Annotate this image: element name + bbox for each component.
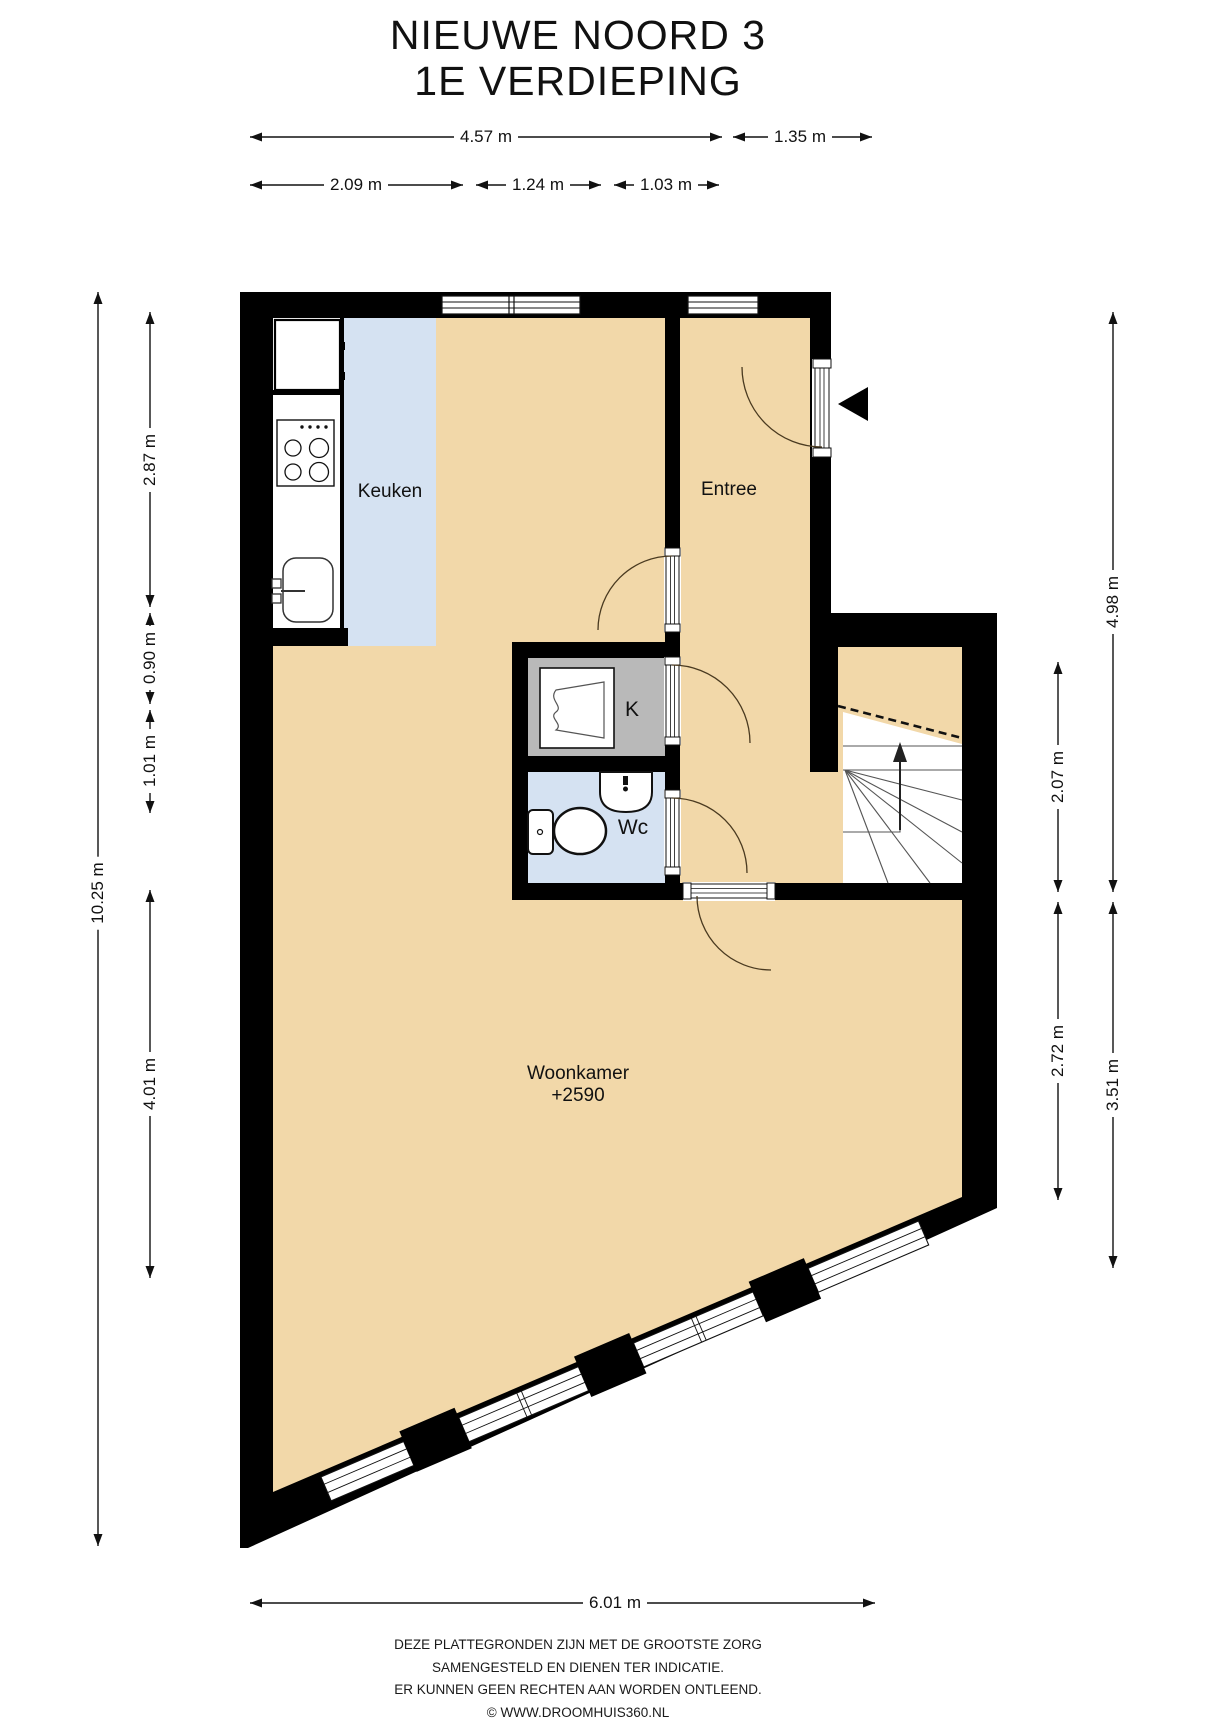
dim-woonkamer-height: 4.01 m bbox=[140, 1052, 160, 1116]
staircase bbox=[838, 706, 962, 883]
disclaimer-line2: SAMENGESTELD EN DIENEN TER INDICATIE. bbox=[0, 1657, 1156, 1680]
floorplan-page: NIEUWE NOORD 3 1E VERDIEPING bbox=[0, 0, 1222, 1728]
dim-width-top: 4.57 m bbox=[454, 127, 518, 147]
closet-room bbox=[528, 658, 665, 756]
window-top-left bbox=[442, 296, 580, 314]
room-label-wc: Wc bbox=[618, 816, 648, 840]
entrance-arrow-icon bbox=[838, 387, 868, 421]
dim-total-height: 10.25 m bbox=[88, 856, 108, 929]
boiler-icon bbox=[540, 668, 614, 748]
counter-end-wall bbox=[273, 628, 348, 646]
room-label-woonkamer: Woonkamer +2590 bbox=[527, 1063, 629, 1107]
dim-right-upper-outer: 4.98 m bbox=[1103, 570, 1123, 634]
dim-width-bottom: 6.01 m bbox=[583, 1593, 647, 1613]
floor-plan-drawing bbox=[0, 0, 1222, 1728]
disclaimer: DEZE PLATTEGRONDEN ZIJN MET DE GROOTSTE … bbox=[0, 1634, 1156, 1724]
toilet-icon bbox=[528, 808, 606, 854]
dim-closet-height: 0.90 m bbox=[140, 626, 160, 690]
dim-width-top-right: 1.35 m bbox=[768, 127, 832, 147]
dim-wc-height: 1.01 m bbox=[140, 729, 160, 793]
woonkamer-name: Woonkamer bbox=[527, 1063, 629, 1085]
kitchen-counter bbox=[272, 318, 348, 646]
dim-entree-width: 1.03 m bbox=[634, 175, 698, 195]
stove-icon bbox=[277, 420, 334, 486]
dim-right-lower-outer: 3.51 m bbox=[1103, 1053, 1123, 1117]
woonkamer-level: +2590 bbox=[527, 1085, 629, 1107]
dim-stairs-height: 2.07 m bbox=[1048, 745, 1068, 809]
room-label-keuken: Keuken bbox=[358, 481, 422, 503]
dim-keuken-height: 2.87 m bbox=[140, 428, 160, 492]
disclaimer-line3: ER KUNNEN GEEN RECHTEN AAN WORDEN ONTLEE… bbox=[0, 1679, 1156, 1702]
kitchen-cabinet bbox=[275, 320, 340, 390]
window-top-right bbox=[688, 296, 758, 314]
dim-keuken-width: 2.09 m bbox=[324, 175, 388, 195]
dim-right-lower-inner: 2.72 m bbox=[1048, 1019, 1068, 1083]
room-label-closet: K bbox=[625, 698, 639, 722]
dim-mid-width: 1.24 m bbox=[506, 175, 570, 195]
room-label-entree: Entree bbox=[701, 479, 757, 501]
wc-sink-icon bbox=[600, 772, 652, 812]
disclaimer-line1: DEZE PLATTEGRONDEN ZIJN MET DE GROOTSTE … bbox=[0, 1634, 1156, 1657]
copyright: © WWW.DROOMHUIS360.NL bbox=[0, 1702, 1156, 1725]
